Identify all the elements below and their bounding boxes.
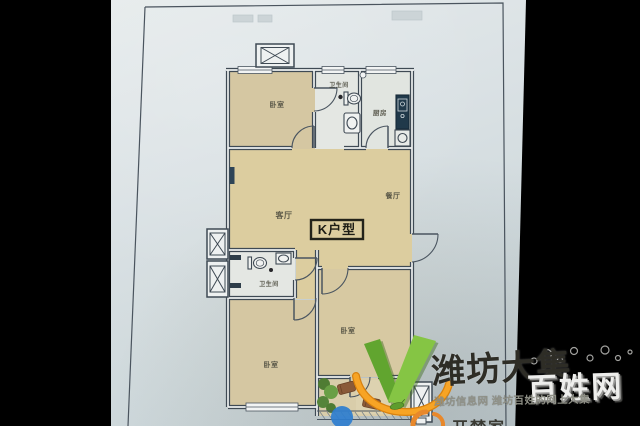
watermark-partial-logo-text: 开梦家: [452, 414, 506, 426]
logo-v-right: [388, 335, 436, 406]
watermark-tagline: 潍坊信息网 潍坊百姓的网上大集: [434, 392, 590, 410]
partial-logo-icon: [413, 412, 443, 426]
floor-plan-photo: K户型 卧室 卫生间 厨房 客厅 餐厅 卫生间 卧室 卧室: [0, 0, 640, 426]
